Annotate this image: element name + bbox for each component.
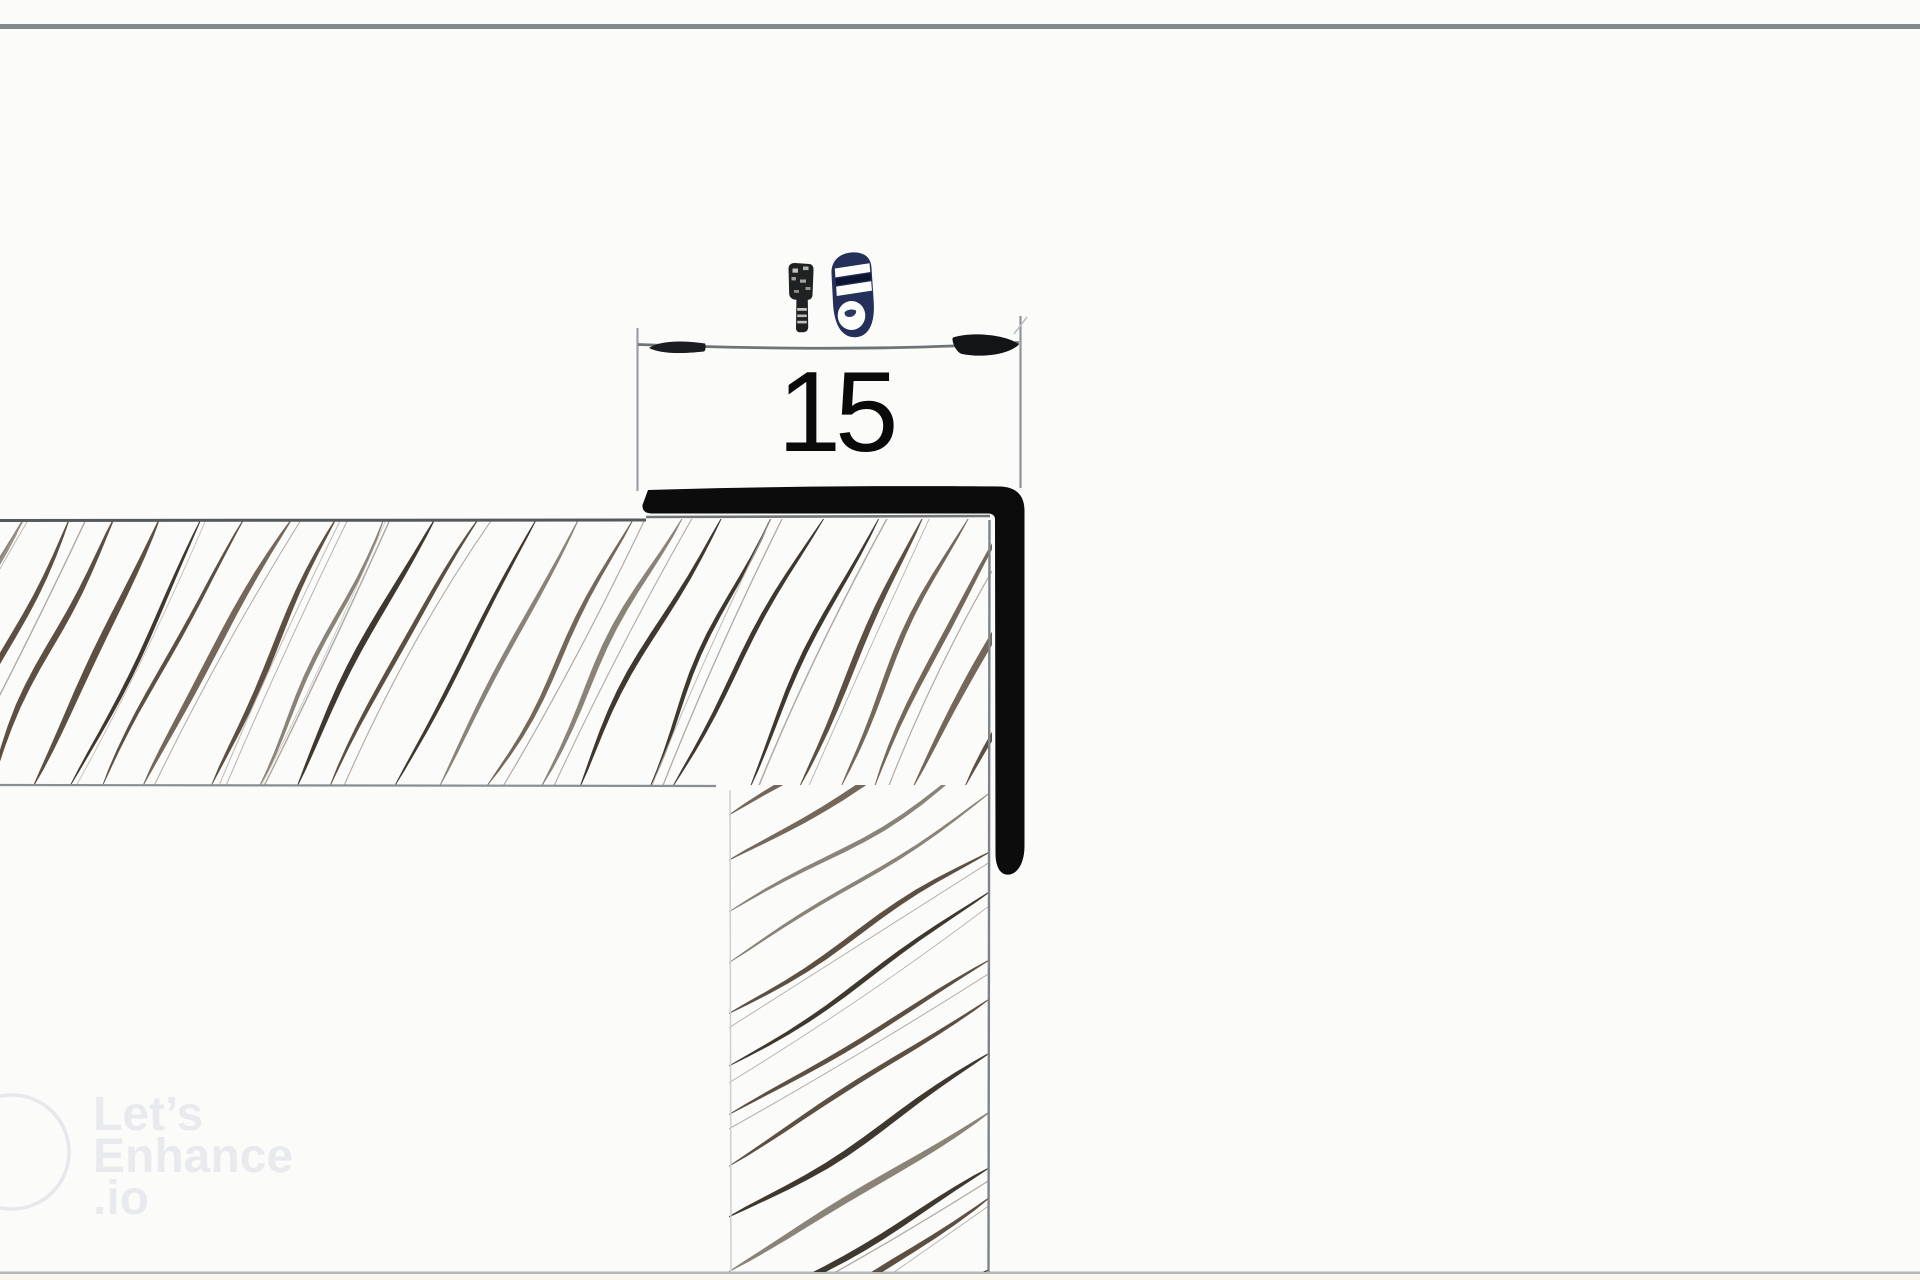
- svg-text:15: 15: [778, 349, 894, 476]
- svg-text:.io: .io: [93, 1172, 149, 1225]
